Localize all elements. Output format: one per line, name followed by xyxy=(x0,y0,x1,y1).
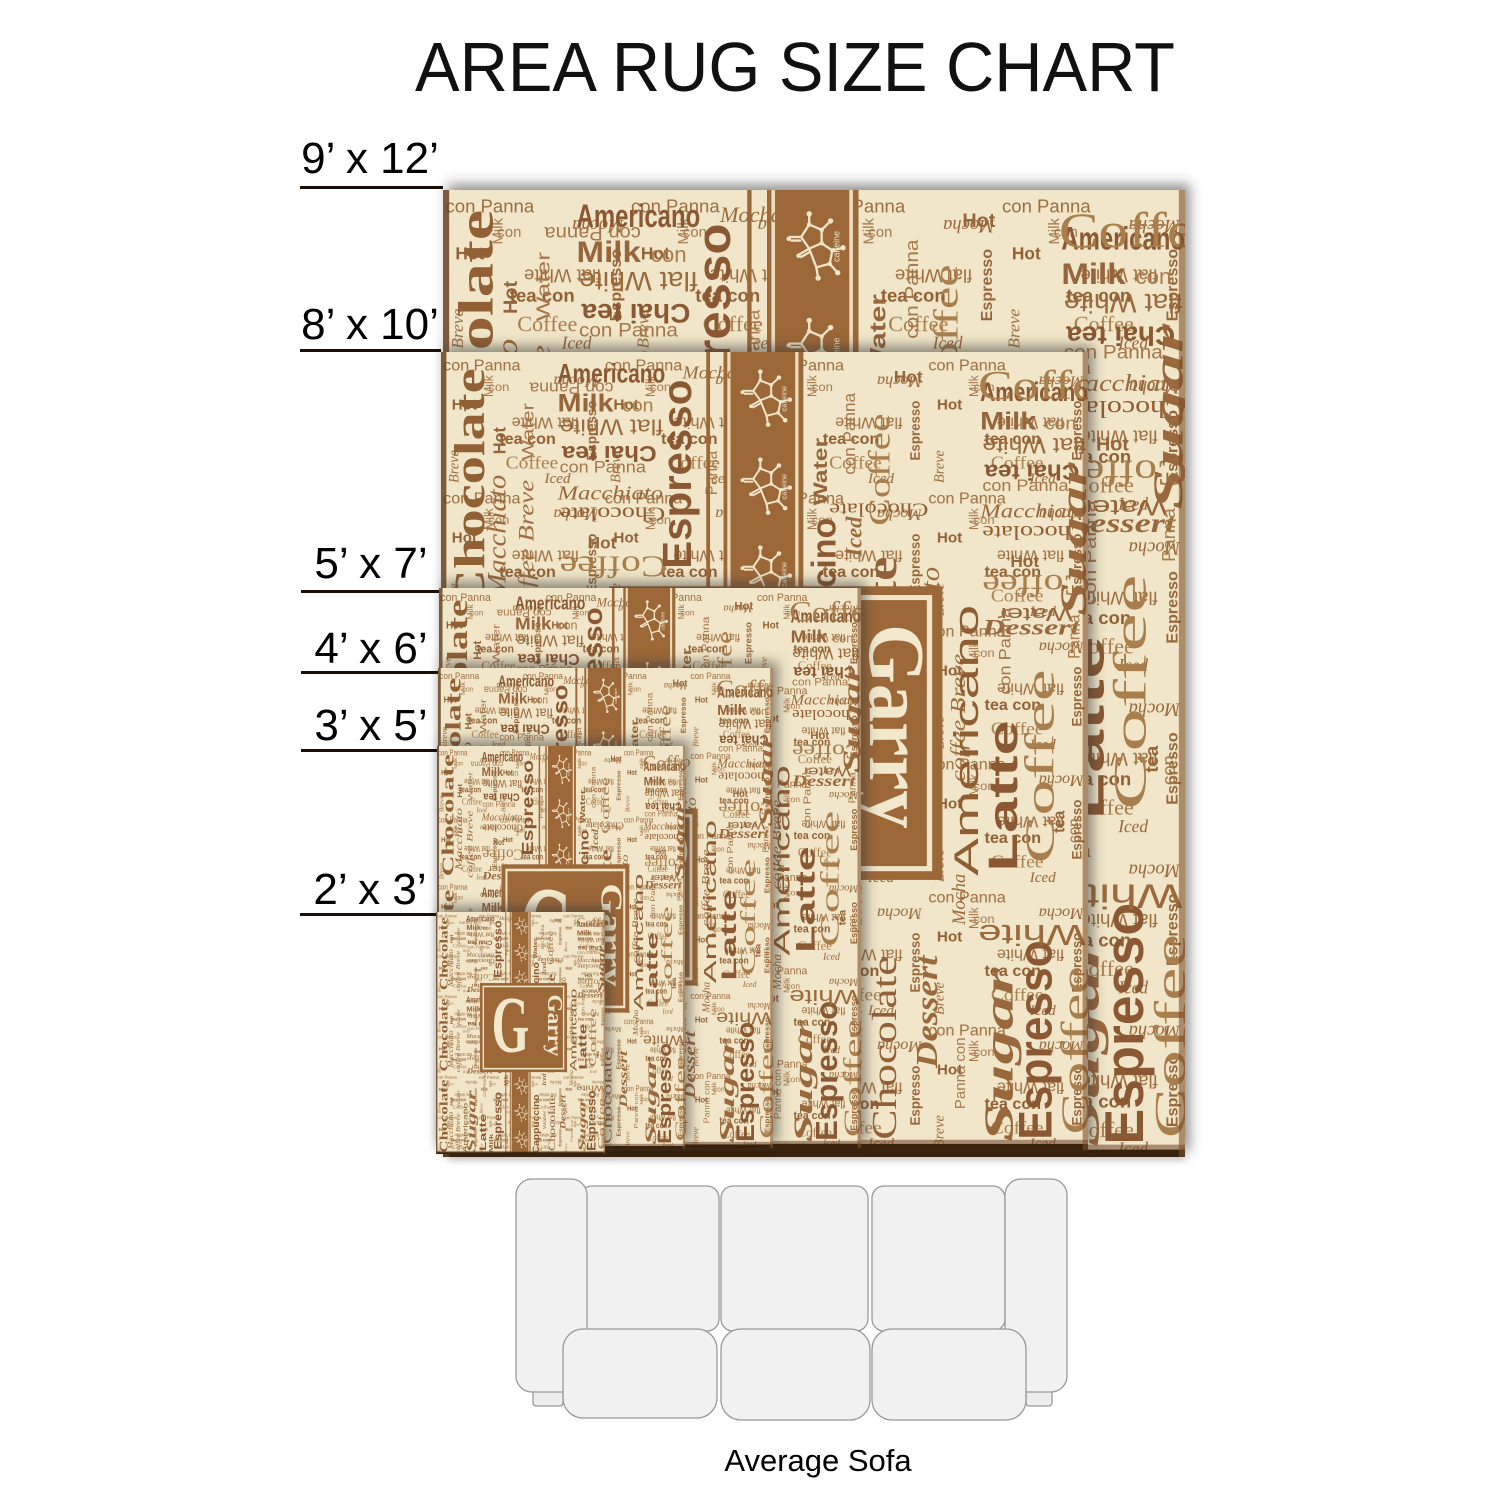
svg-text:9’ x 12’: 9’ x 12’ xyxy=(301,134,439,183)
svg-text:AREA RUG SIZE CHART: AREA RUG SIZE CHART xyxy=(415,28,1175,106)
svg-text:8’ x 10’: 8’ x 10’ xyxy=(301,300,439,349)
svg-text:4’ x 6’: 4’ x 6’ xyxy=(314,624,427,673)
svg-text:3’ x 5’: 3’ x 5’ xyxy=(314,701,427,750)
svg-text:2’ x 3’: 2’ x 3’ xyxy=(313,865,426,914)
svg-text:5’ x 7’: 5’ x 7’ xyxy=(314,539,427,588)
svg-text:Average Sofa: Average Sofa xyxy=(724,1443,912,1478)
